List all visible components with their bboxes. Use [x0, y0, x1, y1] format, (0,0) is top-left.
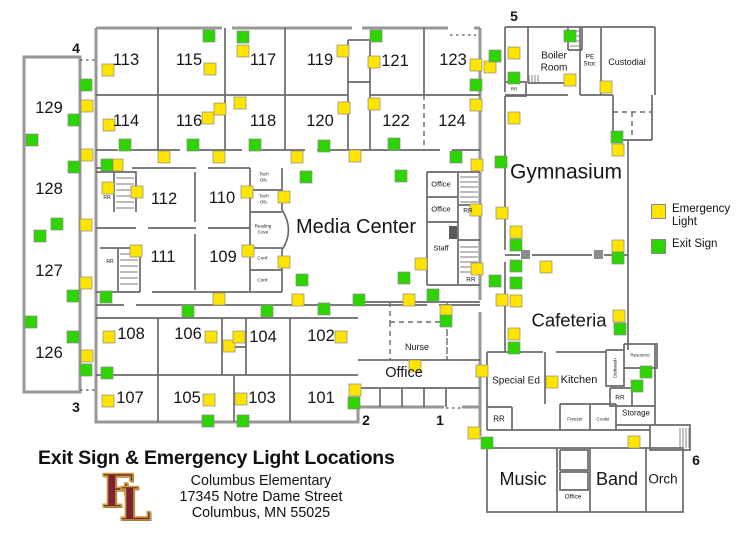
exit-sign-square: [481, 437, 493, 449]
emergency-light-square: [471, 159, 483, 171]
emergency-light-square: [496, 207, 508, 219]
exit-sign-square: [67, 331, 79, 343]
emergency-light-square: [415, 258, 427, 270]
exit-sign-square: [395, 170, 407, 182]
street-address: 17345 Notre Dame Street: [140, 489, 382, 505]
emergency-light-square: [278, 256, 290, 268]
stair-hatching: [116, 31, 689, 448]
emergency-light-square: [510, 226, 522, 238]
gym-door-leaf: [521, 250, 530, 259]
room-label: Office: [565, 494, 582, 501]
emergency-light-square: [471, 263, 483, 275]
room-label: Storage: [622, 409, 651, 418]
room-label: Tech: [259, 172, 269, 177]
emergency-light-square: [612, 144, 624, 156]
room-label: Ofc.: [260, 200, 268, 205]
exit-sign-square: [101, 159, 113, 171]
room-label: 107: [116, 389, 144, 407]
emergency-light-swatch: [651, 204, 666, 219]
exit-sign-square: [510, 277, 522, 289]
room-label: 109: [209, 248, 237, 266]
room-label: Tech: [259, 194, 269, 199]
exit-sign-square: [237, 415, 249, 427]
room-label: 108: [117, 325, 145, 343]
legend-emergency-row: Emergency Light: [651, 203, 746, 229]
school-name: Columbus Elementary: [140, 473, 382, 489]
emergency-light-square: [102, 182, 114, 194]
emergency-light-square: [205, 331, 217, 343]
room-label: Orch: [648, 472, 677, 487]
emergency-light-square: [233, 331, 245, 343]
room-label: Band: [596, 469, 638, 489]
interior-walls: [96, 27, 690, 512]
exit-sign-square: [440, 315, 452, 327]
room-label: Office: [431, 180, 450, 189]
room-label: RR: [615, 395, 625, 402]
exit-sign-square: [67, 290, 79, 302]
room-label: Dishwash: [613, 358, 618, 378]
room-label: RR: [493, 415, 505, 424]
emergency-light-square: [612, 240, 624, 252]
exit-sign-square: [489, 275, 501, 287]
emergency-light-square: [203, 394, 215, 406]
emergency-light-square: [470, 59, 482, 71]
exit-sign-square: [388, 138, 400, 150]
emergency-light-square: [102, 395, 114, 407]
exit-sign-square: [510, 239, 522, 251]
room-label: 112: [151, 190, 177, 208]
exit-sign-square: [119, 139, 131, 151]
gym-door-leaf: [594, 250, 603, 259]
room-label: Nurse: [405, 342, 429, 352]
exit-sign-square: [202, 415, 214, 427]
emergency-light-square: [237, 45, 249, 57]
emergency-light-square: [80, 219, 92, 231]
emergency-light-square: [131, 186, 143, 198]
exit-sign-square: [398, 272, 410, 284]
room-label: Gymnasium: [510, 161, 622, 184]
room-label: Boiler: [541, 51, 567, 62]
emergency-light-square: [234, 97, 246, 109]
room-label: Freezer: [567, 417, 583, 422]
school-address: Columbus Elementary 17345 Notre Dame Str…: [140, 473, 382, 521]
emergency-light-square: [600, 81, 612, 93]
room-label: RR: [511, 87, 518, 92]
emergency-light-square: [368, 56, 380, 68]
emergency-light-square: [349, 384, 361, 396]
emergency-light-square: [368, 98, 380, 110]
emergency-light-square: [103, 331, 115, 343]
room-label: Conf.: [257, 278, 268, 284]
exit-sign-square: [80, 79, 92, 91]
exit-sign-square: [612, 252, 624, 264]
emergency-light-square: [510, 295, 522, 307]
room-label: 127: [35, 262, 63, 280]
exit-sign-square: [640, 366, 652, 378]
room-label: RR: [463, 208, 473, 215]
emergency-light-square: [242, 245, 254, 257]
room-label: 129: [35, 99, 63, 117]
room-label: 119: [307, 51, 333, 69]
room-label: Room: [541, 63, 568, 74]
emergency-light-square: [204, 63, 216, 75]
exit-sign-square: [348, 397, 360, 409]
emergency-light-square: [81, 149, 93, 161]
room-label: 118: [250, 112, 276, 130]
exit-sign-swatch: [651, 239, 666, 254]
room-label: Office: [431, 205, 450, 214]
emergency-light-square: [476, 365, 488, 377]
exit-sign-square: [318, 140, 330, 152]
exit-sign-square: [495, 156, 507, 168]
emergency-light-square: [338, 102, 350, 114]
exit-sign-square: [614, 323, 626, 335]
exit-sign-square: [26, 134, 38, 146]
room-label: 122: [382, 112, 410, 130]
emergency-light-label: Emergency Light: [672, 203, 746, 229]
page-title: Exit Sign & Emergency Light Locations: [38, 447, 395, 470]
room-label: 120: [306, 112, 334, 130]
exit-sign-square: [427, 289, 439, 301]
room-label: 110: [209, 189, 235, 207]
room-label: Reading: [255, 224, 272, 229]
room-label: 116: [176, 112, 202, 130]
emergency-light-square: [508, 112, 520, 124]
exit-sign-square: [34, 230, 46, 242]
exit-sign-square: [25, 316, 37, 328]
exit-sign-square: [300, 171, 312, 183]
emergency-light-square: [278, 191, 290, 203]
room-label: 106: [174, 325, 202, 343]
emergency-light-square: [508, 47, 520, 59]
location-marker: 2: [362, 412, 370, 428]
exit-sign-square: [631, 380, 643, 392]
exit-sign-square: [318, 303, 330, 315]
room-label: 115: [176, 51, 202, 69]
room-label: Conf.: [257, 256, 268, 262]
room-label: 102: [307, 327, 335, 345]
room-label: 126: [35, 344, 63, 362]
room-label: 111: [150, 248, 175, 266]
exit-sign-square: [101, 367, 113, 379]
exit-sign-square: [508, 72, 520, 84]
exit-sign-label: Exit Sign: [672, 238, 717, 251]
emergency-light-square: [546, 376, 558, 388]
light-squares: [25, 30, 652, 449]
emergency-light-square: [540, 261, 552, 273]
exit-sign-square: [100, 291, 112, 303]
exit-sign-square: [261, 305, 273, 317]
exit-sign-square: [237, 31, 249, 43]
exit-sign-square: [510, 260, 522, 272]
exit-sign-square: [611, 131, 623, 143]
exit-sign-square: [564, 30, 576, 42]
city-state-zip: Columbus, MN 55025: [140, 505, 382, 521]
door-connectors: [80, 35, 476, 408]
location-marker: 6: [692, 452, 700, 468]
emergency-light-square: [508, 328, 520, 340]
emergency-light-square: [235, 393, 247, 405]
staff-door: [449, 226, 457, 239]
location-marker: 4: [72, 40, 80, 56]
room-label: 113: [113, 51, 139, 69]
exit-sign-square: [508, 342, 520, 354]
emergency-light-square: [628, 436, 640, 448]
emergency-light-square: [613, 310, 625, 322]
emergency-light-square: [496, 294, 508, 306]
room-label: Stor.: [583, 61, 597, 68]
exit-sign-square: [182, 305, 194, 317]
room-label: 114: [113, 112, 139, 130]
emergency-light-square: [213, 151, 225, 163]
room-label: 124: [438, 112, 466, 130]
emergency-light-square: [403, 294, 415, 306]
exit-sign-square: [450, 151, 462, 163]
exit-sign-square: [68, 114, 80, 126]
emergency-light-square: [291, 151, 303, 163]
exit-sign-square: [249, 139, 261, 151]
emergency-light-square: [484, 61, 496, 73]
exit-sign-square: [296, 274, 308, 286]
exit-sign-square: [353, 294, 365, 306]
room-label: RR: [106, 259, 114, 265]
emergency-light-square: [241, 186, 253, 198]
room-label: 104: [249, 328, 277, 346]
location-marker: 5: [510, 8, 518, 24]
emergency-light-square: [564, 74, 576, 86]
exit-sign-square: [80, 364, 92, 376]
room-label: Kitchen: [561, 374, 598, 386]
legend-exit-row: Exit Sign: [651, 238, 746, 254]
room-label: 117: [250, 51, 276, 69]
emergency-light-square: [202, 112, 214, 124]
exit-sign-square: [370, 30, 382, 42]
room-label: RR: [103, 195, 111, 201]
emergency-light-square: [81, 350, 93, 362]
room-label: Cafeteria: [531, 310, 607, 331]
exit-sign-square: [51, 218, 63, 230]
room-label: 105: [173, 389, 201, 407]
room-label: Special Ed: [492, 376, 540, 387]
location-marker: 3: [72, 399, 80, 415]
emergency-light-square: [213, 293, 225, 305]
room-label: Music: [499, 469, 546, 489]
room-label: 128: [35, 180, 63, 198]
room-label: Ofc.: [260, 178, 268, 183]
exit-sign-square: [489, 50, 501, 62]
emergency-light-square: [158, 151, 170, 163]
room-label: 101: [307, 389, 335, 407]
location-marker: 1: [436, 412, 444, 428]
emergency-light-square: [214, 103, 226, 115]
emergency-light-square: [468, 427, 480, 439]
room-label: Cooler: [596, 417, 610, 422]
legend: Emergency Light Exit Sign: [651, 203, 746, 263]
room-label: Staff: [433, 244, 449, 253]
emergency-light-square: [80, 277, 92, 289]
emergency-light-square: [335, 331, 347, 343]
room-label: Media Center: [296, 216, 416, 238]
room-label: PE: [586, 54, 595, 61]
emergency-light-square: [292, 294, 304, 306]
room-labels: 1131151171191211231141161181201221241121…: [35, 51, 677, 501]
room-label: 103: [248, 389, 276, 407]
exit-sign-square: [187, 139, 199, 151]
room-label: Custodial: [608, 57, 646, 67]
location-markers: 123456: [72, 8, 700, 468]
room-label: 121: [381, 52, 409, 70]
room-label: RR: [466, 277, 476, 284]
emergency-light-square: [470, 99, 482, 111]
emergency-light-square: [337, 45, 349, 57]
exit-sign-square: [470, 79, 482, 91]
room-label: 123: [439, 51, 467, 69]
room-label: Resource: [630, 353, 650, 358]
exit-sign-square: [68, 161, 80, 173]
emergency-light-square: [130, 245, 142, 257]
exit-sign-square: [203, 30, 215, 42]
room-label: Office: [385, 365, 423, 381]
emergency-light-square: [81, 100, 93, 112]
room-label: Cove: [258, 230, 269, 235]
emergency-light-square: [349, 150, 361, 162]
page: { "colors": { "emergency": "#ffe400", "e…: [0, 0, 751, 548]
